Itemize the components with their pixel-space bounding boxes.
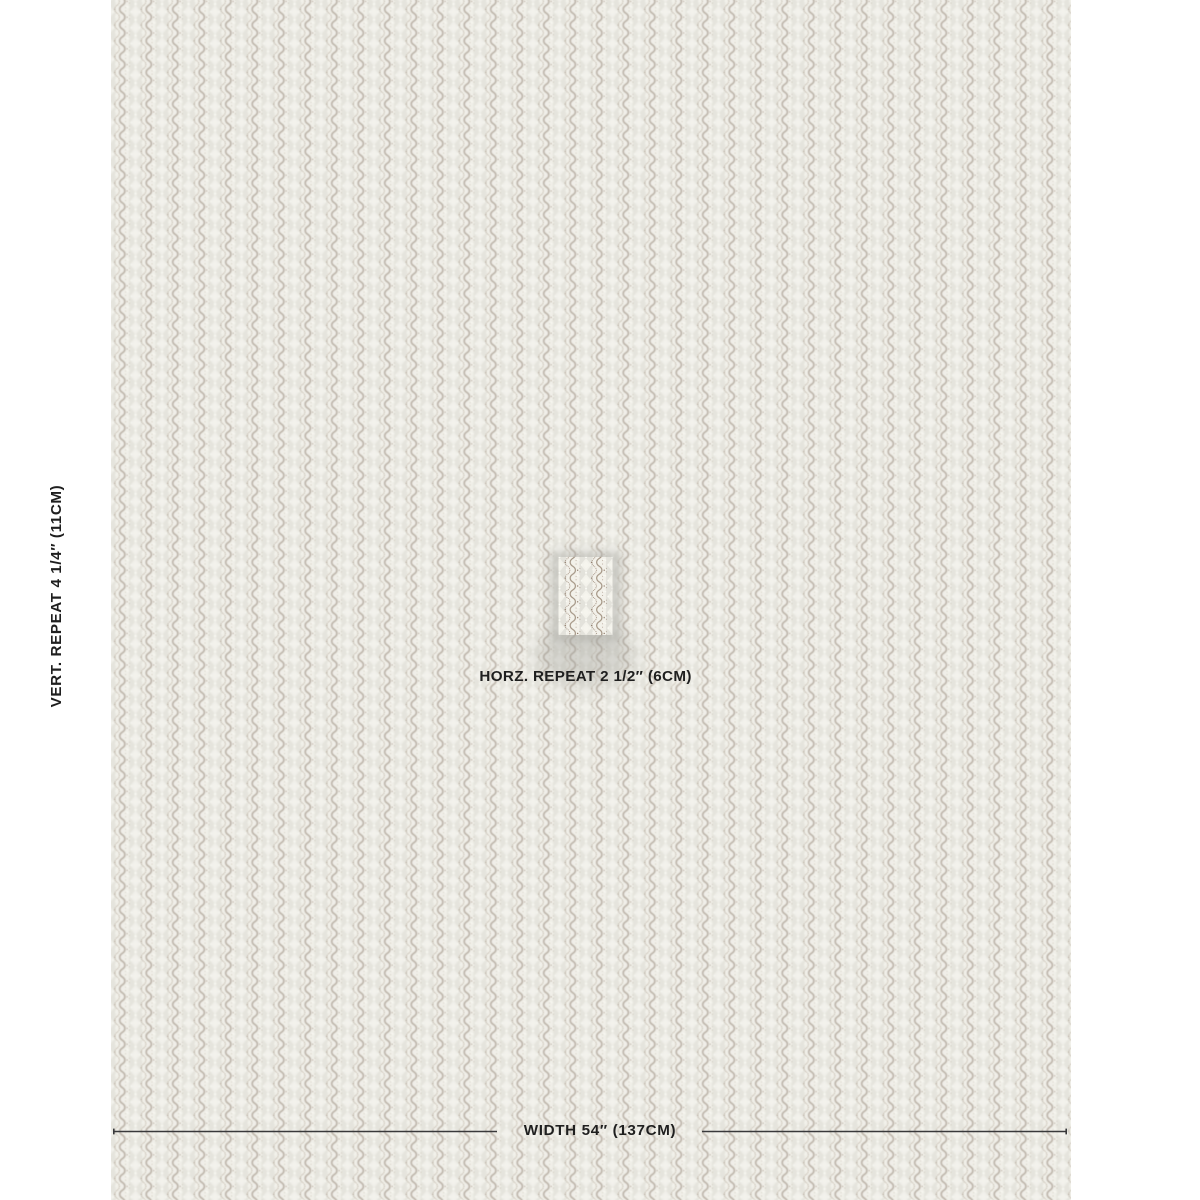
svg-text:HORZ. REPEAT 2 1/2″ (6CM): HORZ. REPEAT 2 1/2″ (6CM)	[479, 668, 691, 685]
svg-text:VERT. REPEAT 4 1/4″ (11CM): VERT. REPEAT 4 1/4″ (11CM)	[48, 485, 65, 708]
svg-text:WIDTH 54″ (137CM): WIDTH 54″ (137CM)	[524, 1122, 677, 1139]
